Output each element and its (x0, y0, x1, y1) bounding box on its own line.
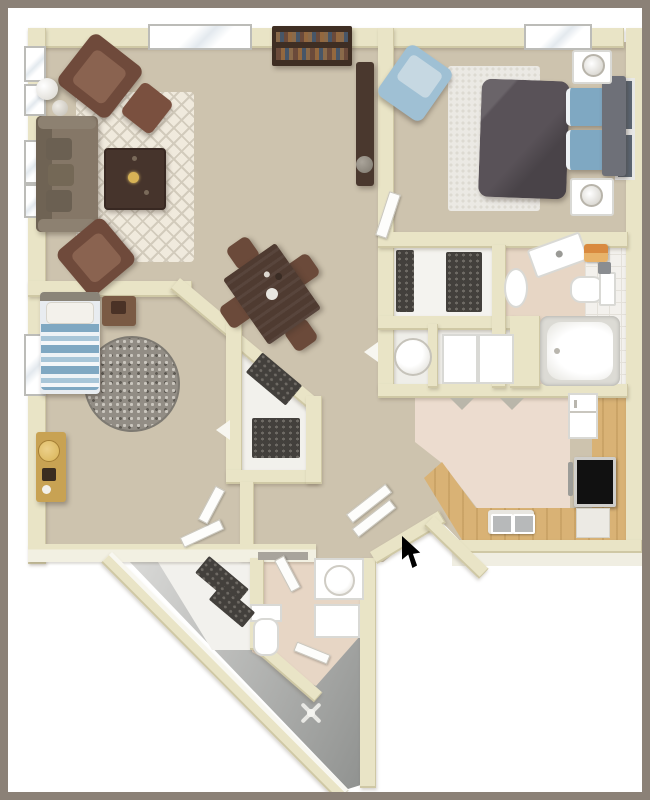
faucet-dot (555, 250, 564, 259)
place-setting-dot (274, 272, 284, 282)
blue-armchair-cushion (395, 53, 443, 99)
bed-comforter (478, 79, 570, 200)
sink-basin-right (513, 514, 535, 534)
entry-toilet-bowl (253, 618, 279, 656)
water-heater (394, 338, 432, 376)
bathtub (540, 316, 620, 386)
table-decor-dot (132, 156, 137, 161)
striped-bed (40, 292, 100, 394)
bed-pillow (46, 302, 94, 324)
bed-headboard (40, 292, 100, 301)
bath-bin (598, 262, 611, 274)
wall-bedroom2-right (226, 322, 242, 482)
wall-laundry-tub (510, 316, 540, 388)
coffee-table (104, 148, 166, 210)
fan-fixture (294, 696, 328, 730)
floor-lamp (36, 78, 58, 100)
fridge-handle (574, 400, 577, 408)
bed-pillow-blue-2 (566, 130, 606, 170)
table-decor-dot (144, 190, 149, 195)
armchair-seat (71, 48, 128, 106)
lamp-north (582, 54, 605, 77)
entry-round-sink (324, 565, 355, 596)
wall-hall-closet-right (306, 396, 322, 484)
place-setting-dot (263, 270, 271, 278)
door-swing-marker-laundry (450, 398, 474, 410)
toilet-tank (599, 272, 616, 306)
door-swing-marker-bath (500, 398, 524, 410)
base-cabinet (576, 508, 610, 538)
bathtub-drain (554, 348, 560, 354)
dresser-gold-bowl (38, 440, 60, 462)
entry-cabinet (314, 604, 360, 638)
gold-dresser (36, 432, 66, 502)
dresser-knob (42, 485, 51, 494)
orange-towels (584, 244, 608, 262)
bedroom1-skylight (524, 24, 592, 50)
centerpiece (264, 286, 281, 303)
sofa-armrest-top (38, 116, 96, 129)
nightstand-bedroom2 (102, 296, 136, 326)
sofa-pillow-2 (48, 164, 74, 186)
wall-kitchen-bottom (452, 540, 642, 553)
bed-pillow-blue-1 (566, 88, 606, 126)
sofa (36, 116, 98, 232)
door-wedge-bedroom2 (216, 420, 230, 440)
armchair-seat (70, 231, 124, 285)
side-table-ball (52, 100, 68, 116)
nightstand-decor (111, 301, 126, 314)
stove-handle (568, 462, 573, 496)
lamp-south (580, 184, 603, 207)
stool (356, 156, 373, 173)
kitchen-sink (488, 510, 534, 534)
entry-vanity (314, 558, 364, 600)
laundry-door-left (442, 334, 478, 384)
headboard (602, 76, 626, 176)
sink-basin-left (491, 514, 513, 534)
book-row-1 (276, 32, 348, 42)
pedestal-sink (504, 268, 528, 308)
candle-decor (128, 172, 139, 183)
door-wedge-closet (364, 342, 378, 362)
living-room-window (148, 24, 252, 50)
closet-shoe-rack-right (446, 252, 482, 312)
bed-striped-blanket (41, 324, 99, 390)
refrigerator (568, 393, 598, 439)
sofa-pillow-1 (46, 138, 72, 160)
left-window-1 (24, 46, 46, 82)
stove (574, 457, 616, 507)
sofa-pillow-3 (46, 190, 72, 212)
laundry-door-right (478, 334, 514, 384)
book-row-2 (276, 48, 348, 60)
dresser-drawer (42, 468, 56, 481)
bookshelf (272, 26, 352, 66)
hall-closet-rack-lower (252, 418, 300, 458)
floor-plan (0, 0, 650, 800)
fridge-divider (570, 411, 596, 413)
fan-hub (307, 709, 315, 717)
closet-shoe-rack-left (396, 250, 414, 312)
